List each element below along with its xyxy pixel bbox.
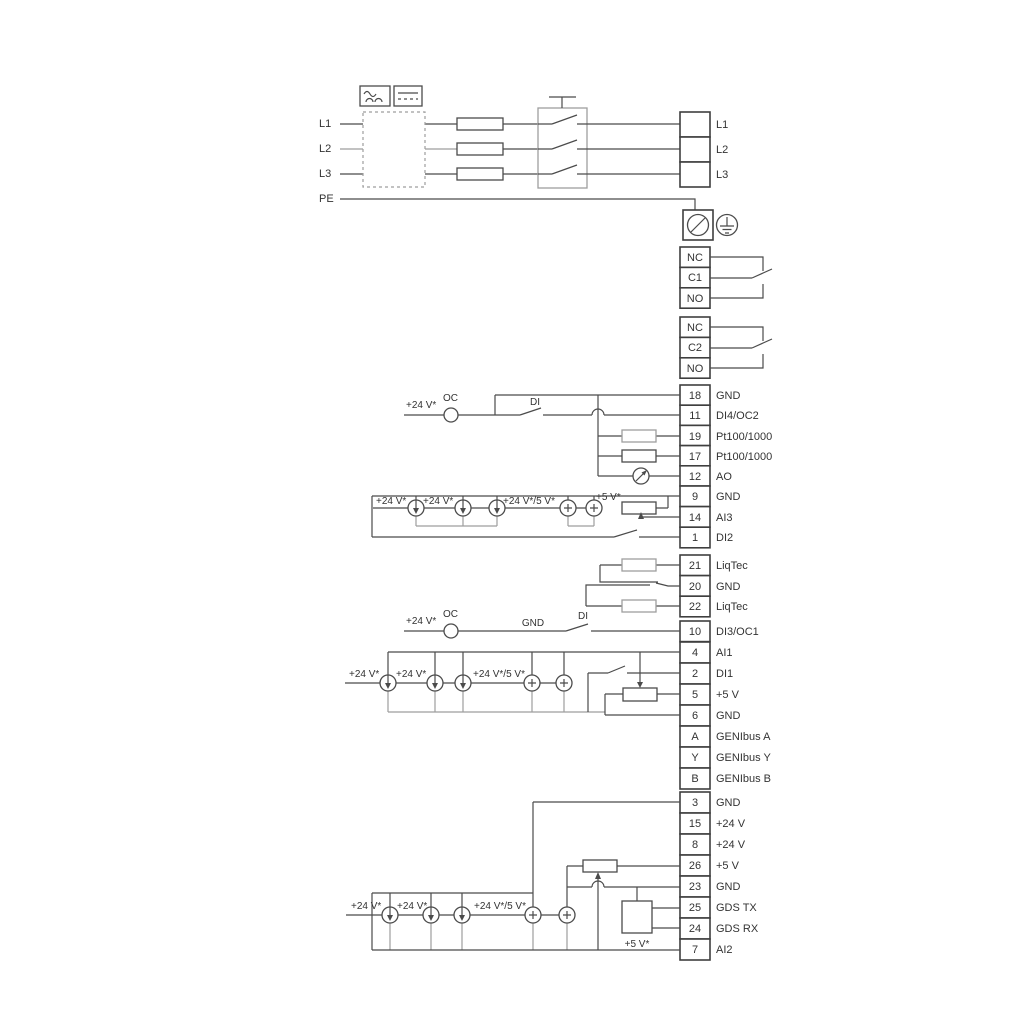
power-input-section: L1 L2 L3 PE [319,86,738,240]
terminal-2: 2 [692,668,698,680]
terminal-7-label: AI2 [716,944,733,956]
gnd-label: GND [522,618,544,629]
terminal-6-label: GND [716,710,741,722]
ac-symbol-icon [360,86,390,106]
v24-label: +24 V* [406,616,436,627]
terminal-9: 9 [692,491,698,503]
current-source-icon [455,500,471,516]
terminal-25-label: GDS TX [716,902,757,914]
terminal-15: 15 [689,818,701,830]
terminal-group-2: 9 14 1 GND AI3 DI2 +24 V* +24 V* +24 V*/… [372,486,741,548]
terminal-24-label: GDS RX [716,923,759,935]
relay1-c1: C1 [688,272,702,284]
terminal-11-label: DI4/OC2 [716,410,759,422]
terminal-14: 14 [689,512,701,524]
terminal-21: 21 [689,560,701,572]
terminal-group-1: 18 11 19 17 12 GND DI4/OC2 Pt100/1000 Pt… [404,385,772,486]
v24-label: +24 V* [423,496,453,507]
filter-box [363,112,425,187]
terminal-8-label: +24 V [716,839,746,851]
potentiometer [622,496,680,519]
v24-5-label: +24 V*/5 V* [474,901,526,912]
terminal-17-label: Pt100/1000 [716,451,772,463]
terminal-19-label: Pt100/1000 [716,431,772,443]
stub-wires-down [390,923,567,950]
terminal-7: 7 [692,944,698,956]
out-l2-label: L2 [716,144,728,156]
fuse-l3 [457,168,503,180]
terminal-23-label: GND [716,881,741,893]
loop-wires [416,516,594,526]
terminal-12: 12 [689,471,701,483]
terminal-4: 4 [692,647,698,659]
terminal-24: 24 [689,923,701,935]
terminal-15-label: +24 V [716,818,746,830]
liqtec-sensor-icon-2 [622,600,656,612]
earth-icon [717,215,738,236]
switch-handle-icon [549,97,576,108]
voltage-source-icon [559,907,575,923]
terminal-group-5: 4 2 5 6 A Y B AI1 DI1 +5 V GND GENIbus A… [345,642,771,789]
fuse-to-switch-wires [503,124,538,174]
di-label: DI [578,611,588,622]
relay1-no: NO [687,293,704,305]
gnd-23-wire [567,881,680,887]
current-source-icon [454,907,470,923]
oc-label: OC [443,609,458,620]
out-l1-label: L1 [716,119,728,131]
terminal-17: 17 [689,451,701,463]
terminal-3: 3 [692,797,698,809]
terminal-26-label: +5 V [716,860,740,872]
terminal-11: 11 [689,410,700,422]
terminal-22-label: LiqTec [716,601,748,613]
terminal-23: 23 [689,881,701,893]
v24-label: +24 V* [406,400,436,411]
terminal-group-6: 3 15 8 26 23 25 24 7 GND +24 V +24 V +5 … [346,792,759,960]
fuse-l2 [457,143,503,155]
phase-l3-label: L3 [319,168,331,180]
relay2-no: NO [687,363,704,375]
current-source-icon [427,675,443,691]
out-l3-label: L3 [716,169,728,181]
phase-l2-label: L2 [319,143,331,155]
terminal-b-label: GENIbus B [716,773,771,785]
open-collector-icon [444,408,458,422]
voltage-source-icon [560,500,576,516]
terminal-3-label: GND [716,797,741,809]
terminal-4-label: AI1 [716,647,733,659]
terminal-a-label: GENIbus A [716,731,771,743]
potentiometer [605,652,680,715]
relay-2: NC C2 NO [680,317,772,378]
pe-terminal-icon [683,210,713,240]
fuse-l1 [457,118,503,130]
v24-label: +24 V* [351,901,381,912]
liqtec-sensor-icon [622,559,656,571]
pe-wire [340,199,695,210]
stub-wires-down [388,691,605,712]
terminal-group-3: 21 20 22 LiqTec GND LiqTec [586,555,748,617]
v24-label: +24 V* [376,496,406,507]
terminal-25: 25 [689,902,701,914]
current-source-icon [380,675,396,691]
pe-label: PE [319,193,334,205]
relay-1: NC C1 NO [680,247,772,308]
pt100-sensor-icon-2 [622,450,656,462]
diagram-canvas: L1 L2 L3 PE [0,0,1024,1024]
v24-label: +24 V* [396,669,426,680]
relay2-nc: NC [687,322,703,334]
phase-l1-label: L1 [319,118,331,130]
terminal-1: 1 [692,532,698,544]
di-label: DI [530,397,540,408]
terminal-y-label: GENIbus Y [716,752,771,764]
mains-terminal-block: L1 L2 L3 [680,112,728,187]
relay2-contact-icon [710,327,772,368]
terminal-5: 5 [692,689,698,701]
v24-5-label: +24 V*/5 V* [503,496,555,507]
terminal-12-label: AO [716,471,732,483]
terminal-18: 18 [689,390,701,402]
gds-sensor: +5 V* [622,887,680,950]
di2-switch-icon [372,530,680,537]
current-source-icon [408,500,424,516]
voltage-source-icon [556,675,572,691]
v24-label: +24 V* [349,669,379,680]
voltage-source-icon [524,675,540,691]
v24-5-label: +24 V*/5 V* [473,669,525,680]
disconnect-switch [538,97,680,188]
dc-symbol-icon [394,86,422,106]
terminal-10: 10 [689,626,701,638]
terminal-22: 22 [689,601,701,613]
relay2-c2: C2 [688,342,702,354]
voltage-source-icon [525,907,541,923]
open-collector-icon [444,624,458,638]
terminal-5-label: +5 V [716,689,740,701]
v24-label: +24 V* [397,901,427,912]
v5-label: +5 V* [596,492,621,503]
terminal-19: 19 [689,431,701,443]
di-switch-icon [495,395,680,415]
current-source-icon [455,675,471,691]
meter-icon [633,468,649,484]
terminal-2-label: DI1 [716,668,733,680]
terminal-26: 26 [689,860,701,872]
relay1-contact-icon [710,257,772,298]
terminal-9-label: GND [716,491,741,503]
terminal-14-label: AI3 [716,512,733,524]
terminal-21-label: LiqTec [716,560,748,572]
terminal-6: 6 [692,710,698,722]
terminal-18-label: GND [716,390,741,402]
terminal-10-label: DI3/OC1 [716,626,759,638]
terminal-b: B [691,773,698,785]
wiring-diagram: L1 L2 L3 PE [0,0,1024,1024]
relay1-nc: NC [687,252,703,264]
oc-label: OC [443,393,458,404]
terminal-20-label: GND [716,581,741,593]
pt100-sensor-icon [622,430,656,442]
terminal-a: A [691,731,699,743]
current-source-icon [382,907,398,923]
terminal-8: 8 [692,839,698,851]
v5-label: +5 V* [625,939,650,950]
terminal-20: 20 [689,581,701,593]
terminal-1-label: DI2 [716,532,733,544]
terminal-y: Y [691,752,699,764]
